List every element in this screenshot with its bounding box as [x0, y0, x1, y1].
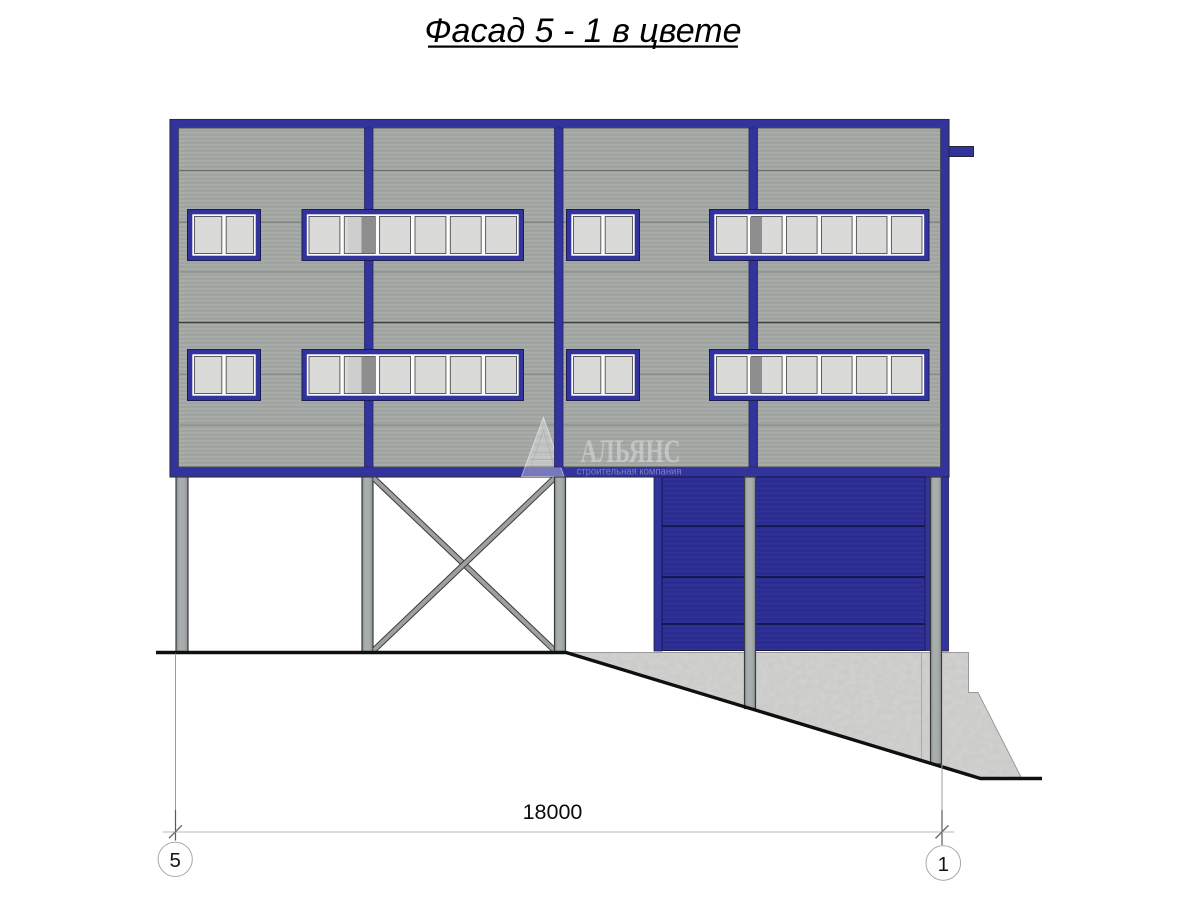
svg-text:1: 1 — [938, 853, 949, 876]
svg-text:5: 5 — [169, 849, 180, 872]
svg-text:строительная компания: строительная компания — [577, 466, 682, 478]
svg-text:18000: 18000 — [523, 800, 583, 824]
svg-text:Фасад 5 - 1 в цвете: Фасад 5 - 1 в цвете — [425, 12, 742, 50]
